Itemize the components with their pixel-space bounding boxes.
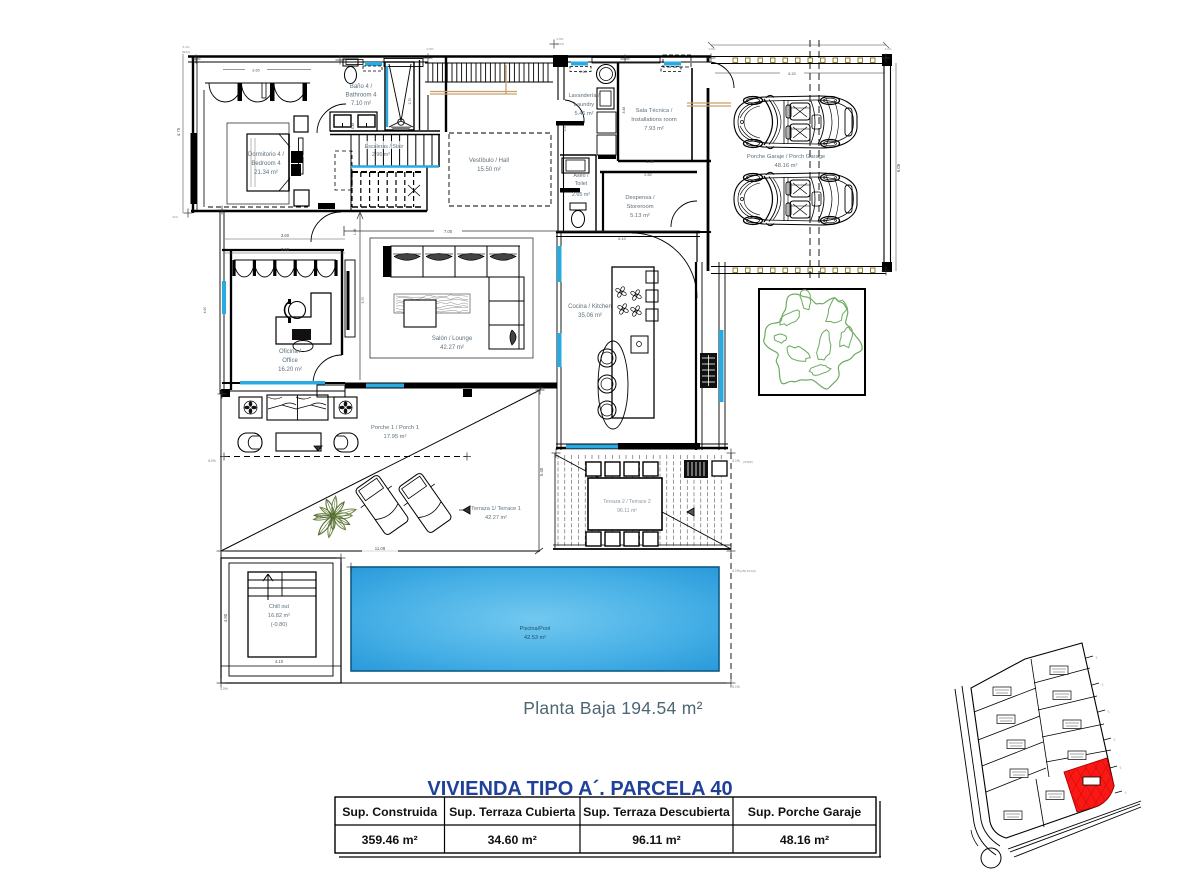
svg-text:4.0%: 4.0% (220, 687, 228, 691)
svg-text:4.90: 4.90 (223, 613, 228, 622)
svg-text:96.11 m²: 96.11 m² (617, 508, 637, 514)
svg-text:Office: Office (282, 358, 298, 364)
svg-text:5.46 m²: 5.46 m² (575, 111, 594, 117)
svg-text:Despensa /: Despensa / (625, 195, 655, 201)
svg-text:1.48: 1.48 (353, 229, 357, 236)
svg-text:Porche Garaje / Porch Garage: Porche Garaje / Porch Garage (747, 154, 825, 160)
svg-text:96.11 m²: 96.11 m² (632, 833, 681, 847)
svg-text:Sup. Terraza Cubierta: Sup. Terraza Cubierta (449, 805, 575, 819)
svg-text:Vestíbulo / Hall: Vestíbulo / Hall (469, 158, 509, 164)
svg-text:2.82: 2.82 (644, 172, 652, 177)
svg-text:Lavandería /: Lavandería / (568, 93, 600, 99)
svg-text:4.10: 4.10 (275, 659, 284, 664)
svg-text:4.90: 4.90 (203, 307, 207, 314)
svg-text:6.70: 6.70 (361, 297, 365, 304)
svg-text:Sala Técnica /: Sala Técnica / (636, 108, 673, 114)
svg-text:17.95 m²: 17.95 m² (384, 434, 407, 440)
svg-text:6.1%: 6.1% (183, 45, 190, 49)
svg-text:Installations room: Installations room (631, 117, 677, 123)
svg-text:11.08: 11.08 (375, 546, 386, 551)
svg-text:42.27 m²: 42.27 m² (440, 345, 464, 351)
svg-text:Laundry: Laundry (574, 102, 594, 108)
svg-text:(STEP): (STEP) (743, 460, 753, 464)
svg-text:Terraza 2 / Terrace 2: Terraza 2 / Terrace 2 (603, 499, 651, 505)
svg-text:Sup. Terraza Descubierta: Sup. Terraza Descubierta (583, 805, 730, 819)
svg-text:8.48: 8.48 (351, 123, 355, 130)
svg-text:48.16 m²: 48.16 m² (775, 163, 798, 169)
svg-text:Baño 4 /: Baño 4 / (350, 84, 373, 90)
svg-text:Aseo /: Aseo / (573, 173, 589, 179)
svg-text:Terraza 1/ Terrace 1: Terraza 1/ Terrace 1 (471, 506, 521, 512)
svg-text:2.70: 2.70 (408, 98, 412, 105)
svg-text:16.82 m²: 16.82 m² (268, 613, 290, 619)
svg-text:2.65 m²: 2.65 m² (572, 192, 590, 198)
svg-text:2.1%: 2.1% (885, 47, 892, 51)
svg-text:5.40: 5.40 (539, 467, 544, 476)
svg-text:2.96 m²: 2.96 m² (372, 152, 390, 158)
svg-text:0.1%: 0.1% (732, 685, 740, 689)
svg-text:Chill out: Chill out (269, 604, 290, 610)
svg-text:0.9%: 0.9% (709, 47, 716, 51)
svg-text:35.06 m²: 35.06 m² (578, 313, 602, 319)
svg-text:42.27 m²: 42.27 m² (485, 515, 507, 521)
svg-text:3.60: 3.60 (281, 247, 290, 252)
svg-text:6.06: 6.06 (896, 163, 901, 172)
svg-text:Sup. Porche Garaje: Sup. Porche Garaje (748, 805, 862, 819)
svg-text:Dormitorio 4 /: Dormitorio 4 / (248, 152, 284, 158)
svg-text:15.50 m²: 15.50 m² (477, 167, 501, 173)
svg-text:7.93 m²: 7.93 m² (644, 126, 664, 132)
svg-text:0.9%: 0.9% (427, 47, 434, 51)
svg-text:0.1%: 0.1% (732, 569, 740, 573)
svg-text:48.16 m²: 48.16 m² (780, 833, 829, 847)
svg-text:1.68: 1.68 (579, 69, 587, 74)
svg-text:Sup. Construida: Sup. Construida (342, 805, 437, 819)
svg-text:Bathroom 4: Bathroom 4 (345, 93, 377, 99)
svg-text:16.20 m²: 16.20 m² (278, 367, 302, 373)
svg-text:6.10: 6.10 (618, 236, 626, 241)
svg-text:6.0%: 6.0% (208, 459, 216, 463)
svg-text:359.46 m²: 359.46 m² (362, 833, 418, 847)
svg-text:42.53 m²: 42.53 m² (524, 635, 546, 641)
svg-text:Planta Baja 194.54 m²: Planta Baja 194.54 m² (523, 698, 702, 718)
svg-text:0.1%: 0.1% (732, 459, 740, 463)
svg-text:0.9%: 0.9% (557, 37, 564, 41)
svg-text:3.60: 3.60 (252, 68, 260, 73)
svg-text:Toilet: Toilet (575, 181, 588, 187)
svg-text:8.48: 8.48 (622, 107, 626, 114)
svg-text:Cocina / Kitchen: Cocina / Kitchen (568, 304, 612, 310)
svg-text:Storeroom: Storeroom (626, 204, 653, 210)
svg-text:34.60 m²: 34.60 m² (488, 833, 537, 847)
svg-text:(MAX): (MAX) (556, 42, 565, 46)
svg-text:(250 PLAN): (250 PLAN) (740, 569, 756, 573)
svg-text:2.30: 2.30 (646, 159, 654, 164)
svg-text:6.20: 6.20 (788, 71, 796, 76)
svg-text:Oficina /: Oficina / (279, 349, 301, 355)
svg-text:(MAX): (MAX) (182, 50, 191, 54)
svg-text:4.75: 4.75 (176, 127, 181, 136)
svg-text:2.50: 2.50 (563, 125, 567, 132)
svg-text:(-0.80): (-0.80) (271, 622, 288, 628)
svg-text:7.00: 7.00 (444, 229, 453, 234)
svg-text:Escaleras / Stair: Escaleras / Stair (365, 144, 404, 150)
svg-text:21.34 m²: 21.34 m² (254, 170, 278, 176)
svg-text:Porche 1 / Porch 1: Porche 1 / Porch 1 (371, 425, 419, 431)
svg-text:Piscina/Pool: Piscina/Pool (520, 626, 551, 632)
svg-text:7.10 m²: 7.10 m² (351, 101, 371, 107)
svg-text:Salón / Lounge: Salón / Lounge (432, 336, 473, 342)
svg-text:11%: 11% (172, 215, 178, 219)
svg-text:Bedroom 4: Bedroom 4 (251, 161, 281, 167)
svg-text:3.60: 3.60 (281, 233, 290, 238)
svg-text:5.13 m²: 5.13 m² (630, 213, 650, 219)
